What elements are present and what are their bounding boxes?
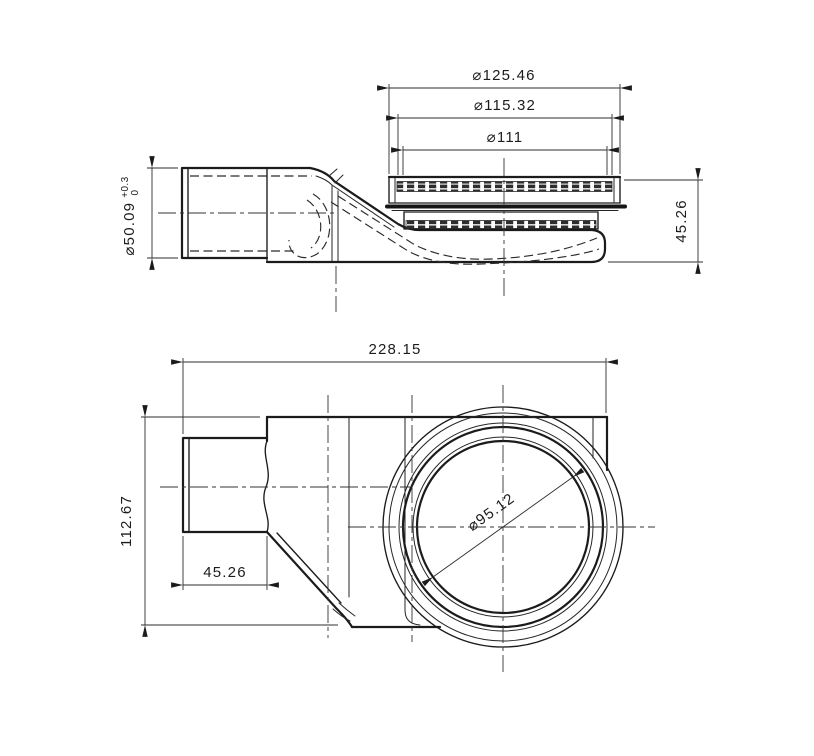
dim-length-ext-lines <box>183 358 606 434</box>
dim-dia-outer-label: ⌀125.46 <box>472 67 535 84</box>
plan-pipe-joint-break-line <box>264 441 268 532</box>
dim-height: 45.26 <box>608 180 703 262</box>
dim-dia-grate-label: ⌀111 <box>487 129 524 146</box>
trap-hook-hidden-inner <box>307 200 321 248</box>
plan-outlet-pipe-outline <box>183 438 267 532</box>
dim-length-label: 228.15 <box>368 341 421 358</box>
dim-dia-outer: ⌀125.46 <box>389 67 620 174</box>
dim-dia-grate: ⌀111 <box>403 129 607 175</box>
grate-slot-hatch-lower <box>406 221 596 229</box>
dim-width-label: 112.67 <box>118 495 135 547</box>
dim-dia-ring-label: ⌀115.32 <box>474 97 536 114</box>
dim-outlet-length: 45.26 <box>183 536 267 590</box>
dim-outlet-dia-value: ⌀50.09 <box>121 202 138 256</box>
dim-width-ext-lines <box>141 417 338 625</box>
slope-corner-tick-2 <box>335 175 343 183</box>
body-base-outline <box>267 230 605 262</box>
dim-outlet-dia-tol-zero: 0 <box>130 189 141 195</box>
side-view: ⌀125.46 ⌀115.32 ⌀111 45.26 ⌀50.09+0.30 <box>120 67 703 312</box>
dim-outlet-dia-label: ⌀50.09+0.30 <box>120 176 141 255</box>
slope-corner-tick-1 <box>329 169 337 176</box>
dim-outlet-length-ext-lines <box>183 536 267 590</box>
dim-height-label: 45.26 <box>673 199 690 243</box>
plan-chamfer-outer-edge <box>267 532 352 627</box>
grate-slot-hatch-top <box>397 182 612 192</box>
trap-hook-hidden-outer <box>289 194 330 258</box>
dim-outlet-length-label: 45.26 <box>203 564 247 581</box>
technical-drawing: ⌀125.46 ⌀115.32 ⌀111 45.26 ⌀50.09+0.30 <box>0 0 814 756</box>
dim-bore-dia-label: ⌀95.12 <box>465 490 519 535</box>
dim-width: 112.67 <box>118 417 338 625</box>
slope-inner-wall-line <box>316 176 394 227</box>
drawing-canvas: ⌀125.46 ⌀115.32 ⌀111 45.26 ⌀50.09+0.30 <box>0 0 814 756</box>
plan-chamfer-inner-edge <box>277 533 341 603</box>
plan-view: 228.15 112.67 45.26 ⌀95.12 <box>118 341 655 672</box>
